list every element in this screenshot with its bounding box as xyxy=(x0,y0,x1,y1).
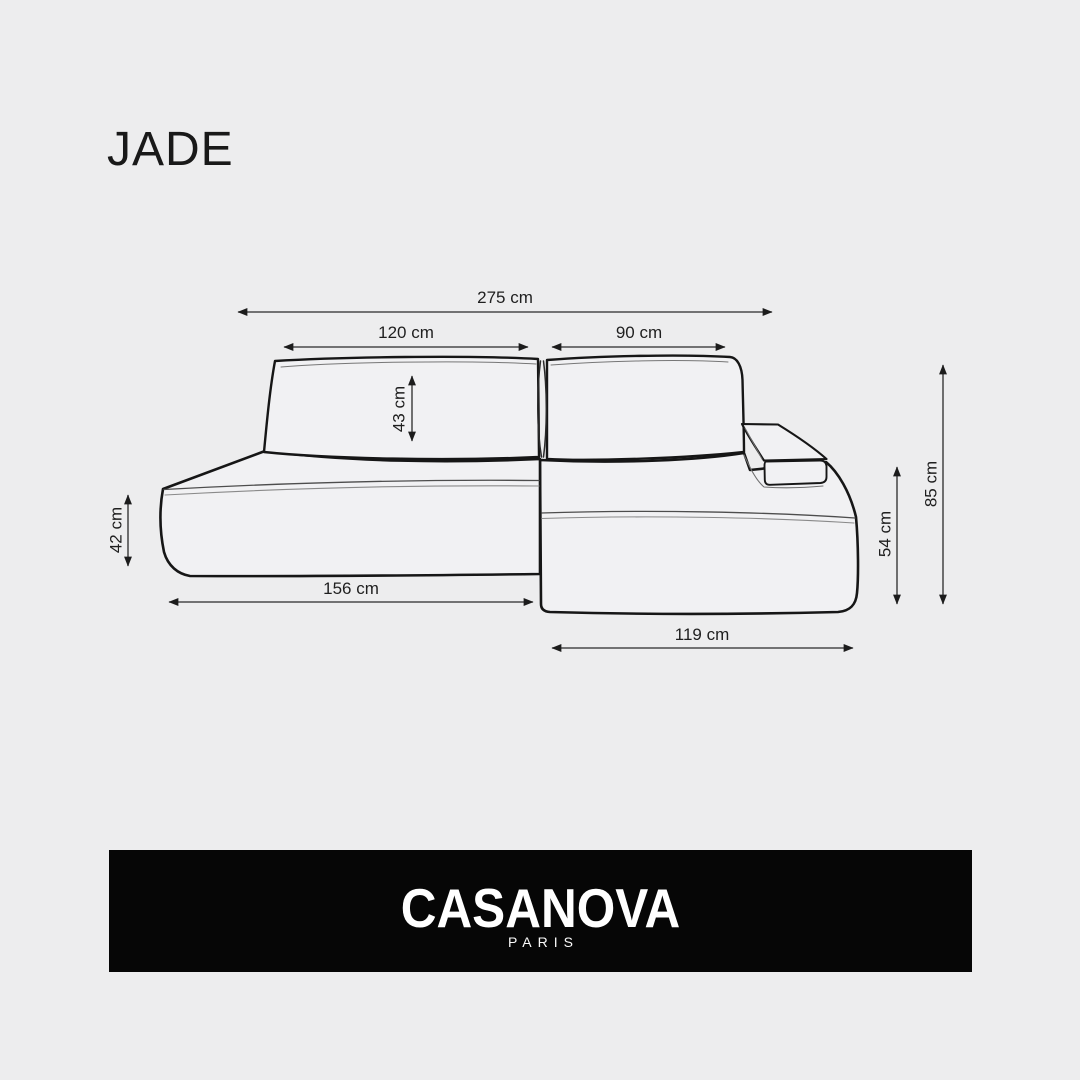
dim-label-chaise-height: 54 cm xyxy=(877,511,894,557)
dim-label-chaise-length: 119 cm xyxy=(675,626,730,643)
dim-label-seat-height: 42 cm xyxy=(108,507,125,553)
brand-city-paris: PARIS xyxy=(109,935,972,949)
dim-label-back-left-width: 120 cm xyxy=(378,324,434,341)
product-dimension-card: JADE xyxy=(0,0,1080,1080)
brand-logo-casanova: CASANOVA xyxy=(152,881,929,936)
dim-label-total-height: 85 cm xyxy=(923,461,940,507)
dim-label-cushion-height: 43 cm xyxy=(391,386,408,432)
sofa-drawing xyxy=(160,356,858,614)
dim-label-back-right-width: 90 cm xyxy=(616,324,662,341)
sofa-right-backrest-cushion xyxy=(547,356,744,460)
sofa-left-seat xyxy=(160,451,540,576)
sofa-armrest-front xyxy=(765,461,827,485)
dim-label-total-width: 275 cm xyxy=(477,289,533,306)
sofa-armrest-top xyxy=(742,424,827,461)
dim-label-left-length: 156 cm xyxy=(323,580,379,597)
brand-banner: CASANOVA PARIS xyxy=(109,850,972,972)
